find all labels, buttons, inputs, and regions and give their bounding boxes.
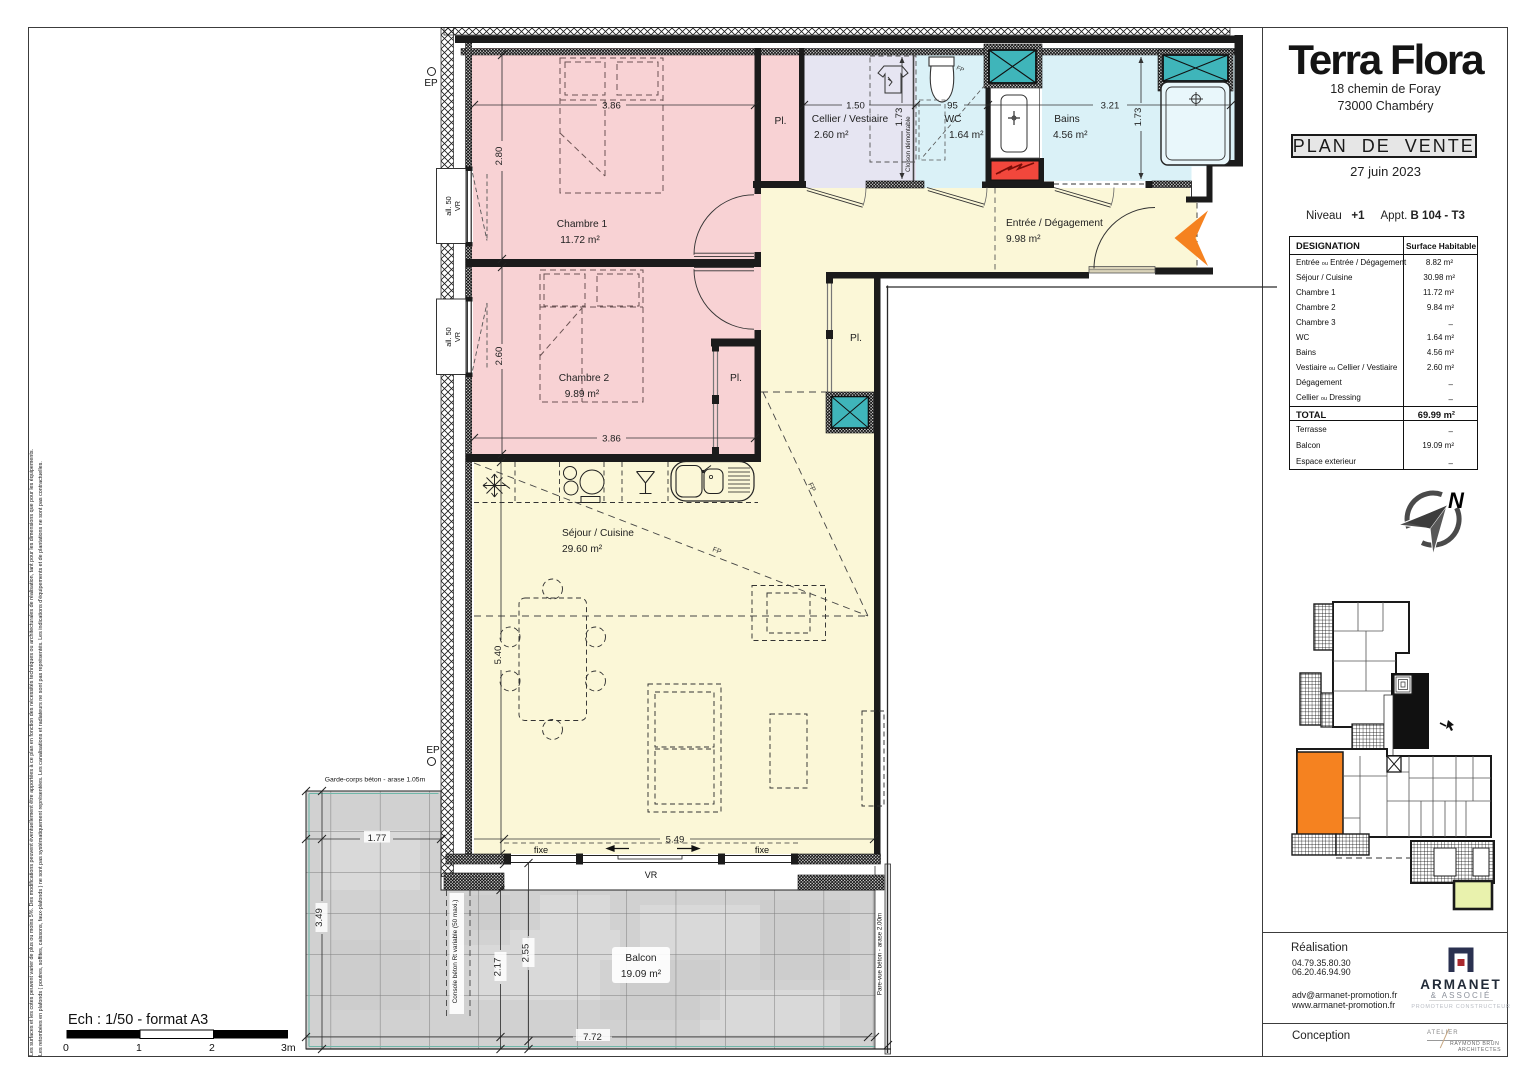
svg-text:1.73: 1.73 [894, 108, 905, 127]
svg-text:EP: EP [424, 78, 438, 89]
svg-text:Balcon: Balcon [625, 953, 656, 964]
svg-text:Pl.: Pl. [730, 373, 742, 384]
svg-text:3.86: 3.86 [602, 101, 621, 112]
svg-text:4.56 m²: 4.56 m² [1053, 130, 1088, 141]
svg-text:Bains: Bains [1054, 114, 1079, 125]
svg-text:3.86: 3.86 [602, 434, 621, 445]
svg-text:2.17: 2.17 [493, 958, 504, 977]
svg-text:WC: WC [945, 114, 962, 125]
svg-text:Chambre 2: Chambre 2 [559, 373, 610, 384]
svg-text:1.77: 1.77 [368, 833, 387, 844]
svg-text:2.60: 2.60 [494, 347, 505, 366]
svg-text:3.49: 3.49 [314, 908, 325, 927]
svg-text:Pl.: Pl. [775, 116, 787, 127]
svg-text:2.80: 2.80 [494, 147, 505, 166]
svg-text:9.89 m²: 9.89 m² [565, 389, 600, 400]
svg-text:fixe: fixe [755, 845, 769, 855]
svg-text:0: 0 [63, 1042, 69, 1054]
svg-text:Séjour / Cuisine: Séjour / Cuisine [562, 528, 634, 539]
svg-text:9.98 m²: 9.98 m² [1006, 234, 1041, 245]
svg-text:VR: VR [645, 870, 658, 880]
svg-text:2.60 m²: 2.60 m² [814, 130, 849, 141]
svg-text:all. 50: all. 50 [444, 196, 453, 215]
svg-text:1.50: 1.50 [846, 101, 865, 112]
svg-text:Chambre 1: Chambre 1 [557, 219, 608, 230]
svg-text:Pare-vue béton - arase 2.00m: Pare-vue béton - arase 2.00m [877, 913, 884, 995]
svg-text:Garde-corps béton - arase 1.05: Garde-corps béton - arase 1.05m [325, 777, 426, 784]
svg-text:11.72 m²: 11.72 m² [560, 235, 600, 246]
svg-text:3.21: 3.21 [1101, 101, 1120, 112]
svg-text:1.64 m²: 1.64 m² [949, 130, 984, 141]
svg-text:2.55: 2.55 [521, 944, 532, 963]
svg-text:fixe: fixe [534, 845, 548, 855]
svg-text:Cloison démontable: Cloison démontable [905, 116, 912, 172]
svg-text:Pl.: Pl. [850, 333, 862, 344]
svg-text:19.09 m²: 19.09 m² [621, 969, 662, 980]
svg-text:all. 50: all. 50 [444, 327, 453, 346]
svg-text:2: 2 [209, 1042, 215, 1054]
svg-text:Ech : 1/50 - format A3: Ech : 1/50 - format A3 [68, 1012, 208, 1028]
svg-text:Cellier / Vestiaire: Cellier / Vestiaire [812, 114, 889, 125]
svg-text:5.49: 5.49 [666, 835, 685, 846]
svg-text:VR: VR [453, 332, 462, 342]
svg-text:5.40: 5.40 [493, 646, 504, 665]
svg-text:Console béton Rt variable (50: Console béton Rt variable (50 maxi.) [452, 900, 459, 1004]
svg-text:95: 95 [947, 101, 958, 112]
svg-text:3m: 3m [281, 1042, 296, 1054]
svg-text:29.60 m²: 29.60 m² [562, 544, 603, 555]
svg-text:7.72: 7.72 [583, 1032, 602, 1043]
svg-text:VR: VR [453, 201, 462, 211]
svg-text:Entrée / Dégagement: Entrée / Dégagement [1006, 218, 1103, 229]
svg-text:1: 1 [136, 1042, 142, 1054]
svg-text:1.73: 1.73 [1133, 108, 1144, 127]
svg-text:N: N [1448, 488, 1465, 513]
svg-text:EP: EP [426, 745, 440, 756]
